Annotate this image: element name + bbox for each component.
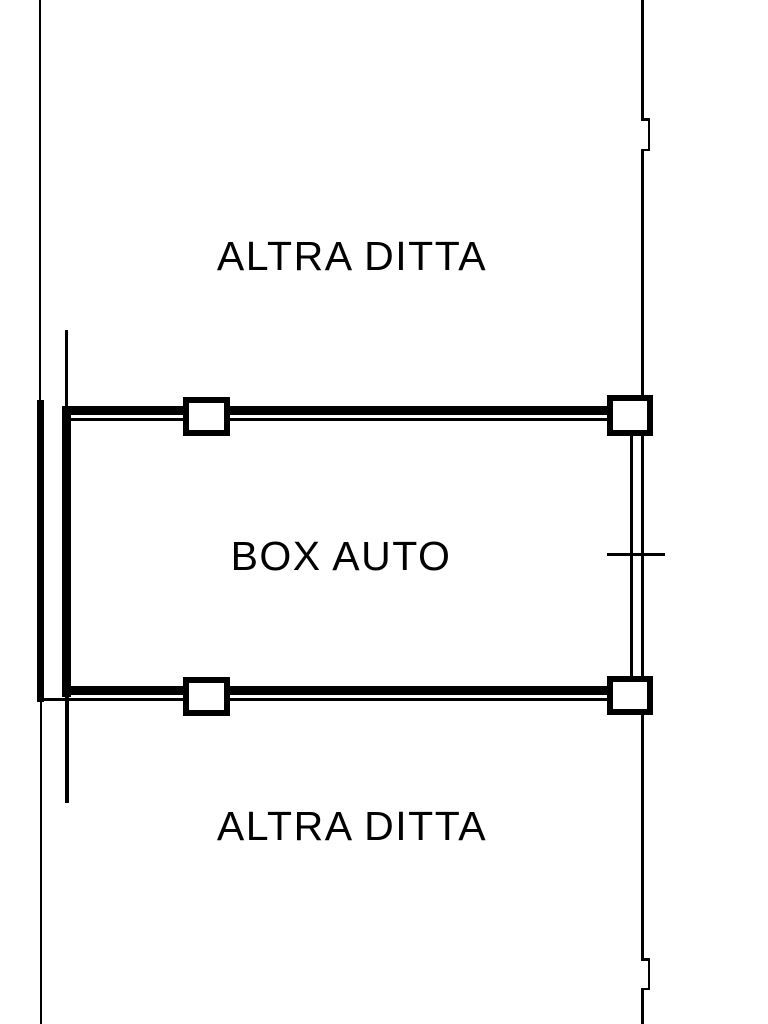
box-bottom-wall-inner [62,686,608,695]
box-right-opening-line [630,435,633,677]
box-bottom-wall-outer [43,698,608,701]
pillar-bottom-right [607,676,653,715]
left-boundary-line-bottom [40,701,42,1024]
right-boundary-line-bottom [641,988,644,1024]
left-boundary-line-top [39,0,41,401]
right-boundary-notch-top-v [648,118,651,151]
wall-stub-below [65,697,69,803]
label-adjacent-property-bottom: ALTRA DITTA [217,806,487,847]
box-left-wall [62,406,71,697]
label-box-auto: BOX AUTO [231,536,452,577]
right-boundary-line-top [641,0,644,120]
pillar-bottom-middle [183,677,230,716]
box-top-wall-inner [62,418,608,421]
label-adjacent-property-top: ALTRA DITTA [217,236,487,277]
box-top-wall-outer [62,406,608,415]
pillar-top-middle [183,397,230,436]
right-boundary-notch-bottom-v [648,958,651,990]
dimension-tick [607,553,665,556]
left-boundary-line-thick [37,400,44,702]
wall-stub-above [65,330,69,406]
floor-plan-canvas: ALTRA DITTA BOX AUTO ALTRA DITTA [0,0,768,1024]
pillar-top-right [607,395,653,436]
